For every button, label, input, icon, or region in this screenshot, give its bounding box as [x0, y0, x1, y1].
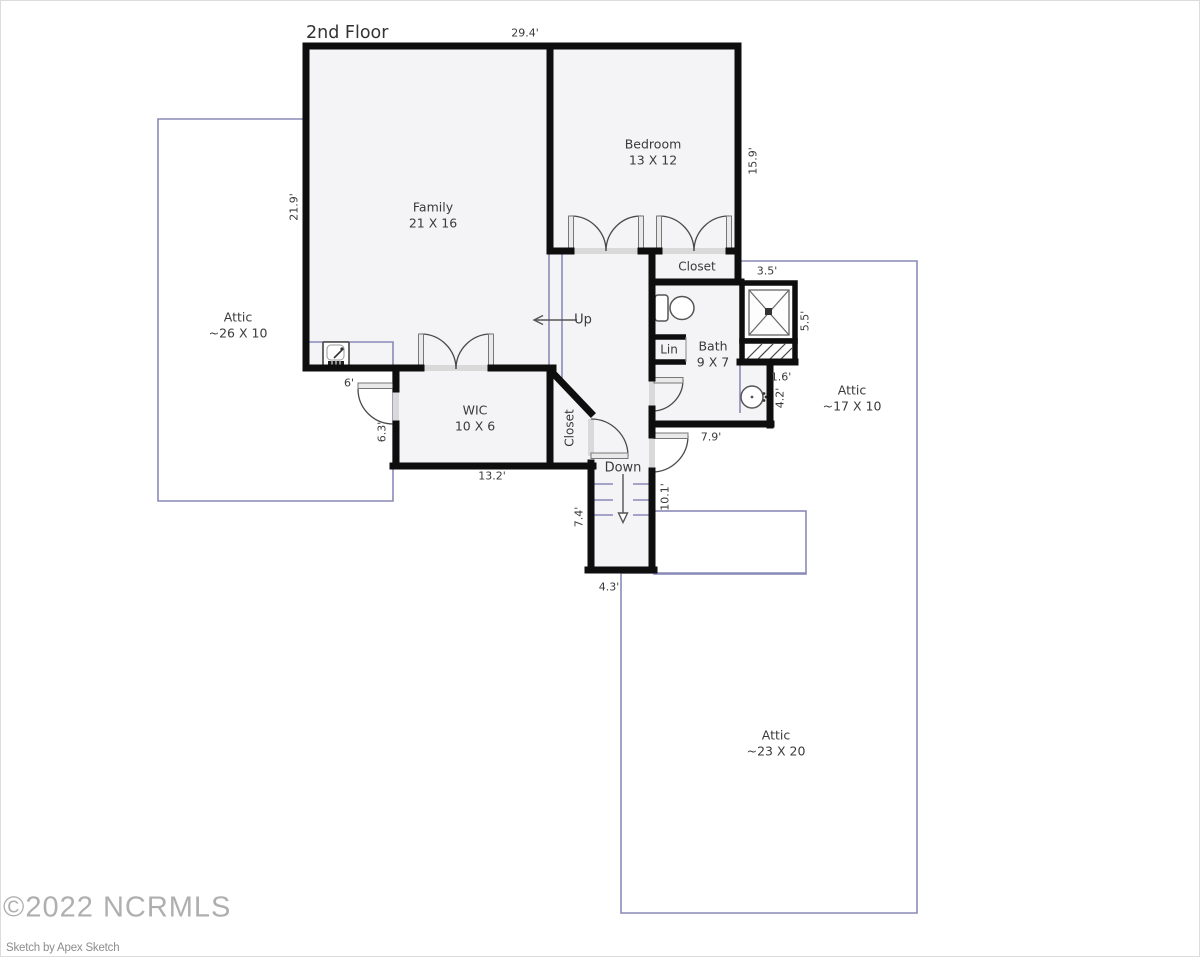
door-leaf — [639, 216, 644, 251]
room-name: Attic — [823, 382, 882, 398]
room-name: Family — [409, 199, 457, 215]
room-label-linen: Lin — [660, 343, 678, 358]
door-leaf — [727, 216, 732, 251]
dim-shower-height: 5.5' — [800, 311, 811, 332]
room-name: WIC — [455, 402, 495, 418]
room-size: 10 X 6 — [455, 418, 495, 434]
dim-family-south-wall: 6' — [344, 378, 354, 389]
utility-sink-faucet-dot — [340, 347, 343, 350]
dim-wic-width: 13.2' — [478, 471, 506, 482]
dim-stair-height-left: 7.4' — [574, 507, 585, 528]
door-leaf — [591, 453, 628, 459]
dim-stair-width: 4.3' — [599, 582, 620, 593]
room-size: 9 X 7 — [697, 354, 729, 370]
room-size: ~26 X 10 — [209, 325, 268, 341]
opening-header — [649, 435, 655, 471]
room-name: Attic — [209, 309, 268, 325]
toilet-tank — [655, 295, 668, 321]
dim-stair-height-right: 10.1' — [660, 483, 671, 511]
room-label-attic-bottom: Attic ~23 X 20 — [747, 727, 806, 758]
room-size: ~23 X 20 — [747, 743, 806, 759]
dim-vanity-height: 4.2' — [775, 388, 786, 409]
sink-faucet-dot — [763, 392, 766, 395]
stair-up-label: Up — [574, 314, 592, 327]
stair-down-label: Down — [605, 462, 642, 475]
family-room-sink — [323, 342, 349, 367]
hall-door-arc — [652, 436, 688, 472]
opening-header — [393, 389, 399, 424]
room-label-wic: WIC 10 X 6 — [455, 402, 495, 433]
dim-bedroom-height: 15.9' — [748, 147, 759, 175]
dim-shower-width: 3.5' — [757, 266, 778, 277]
sink-faucet-dot — [751, 396, 754, 399]
dim-bath-width: 7.9' — [701, 432, 722, 443]
door-leaf — [654, 378, 683, 384]
door-leaf — [657, 216, 662, 251]
door-leaf — [569, 216, 574, 251]
opening-header — [588, 419, 594, 456]
door-leaf — [419, 334, 424, 369]
attic-access-door-arc — [358, 389, 393, 424]
dim-family-height: 21.9' — [289, 193, 300, 221]
door-leaf — [489, 334, 494, 369]
dim-overall-width: 29.4' — [511, 28, 539, 39]
door-leaf — [358, 383, 393, 389]
door-leaf — [654, 433, 688, 439]
room-size: ~17 X 10 — [823, 398, 882, 414]
room-name: Bath — [697, 338, 729, 354]
room-label-bedroom: Bedroom 13 X 12 — [625, 136, 682, 167]
floor-plan-canvas: 2nd Floor Family 21 X 16 Bedroom 13 X 12… — [0, 0, 1200, 957]
dim-wic-height: 6.3' — [377, 422, 388, 443]
room-label-bedroom-closet: Closet — [678, 260, 715, 275]
room-name: Bedroom — [625, 136, 682, 152]
watermark-copyright: ©2022 NCRMLS — [3, 892, 231, 925]
room-size: 13 X 12 — [625, 152, 682, 168]
sink-faucet-dot — [763, 399, 766, 402]
dim-vanity-width: 1.6' — [771, 372, 792, 383]
room-label-attic-right: Attic ~17 X 10 — [823, 382, 882, 413]
room-label-hall-closet: Closet — [563, 409, 578, 446]
attic-stair-side-outline — [654, 511, 806, 574]
page-title: 2nd Floor — [306, 23, 388, 43]
room-label-attic-left: Attic ~26 X 10 — [209, 309, 268, 340]
room-label-family: Family 21 X 16 — [409, 199, 457, 230]
room-name: Attic — [747, 727, 806, 743]
watermark-credit: Sketch by Apex Sketch — [6, 942, 119, 954]
shower-drain — [765, 308, 772, 315]
room-label-bath: Bath 9 X 7 — [697, 338, 729, 369]
room-size: 21 X 16 — [409, 215, 457, 231]
toilet-bowl — [670, 297, 694, 320]
floor-plan-drawing — [1, 1, 1200, 957]
